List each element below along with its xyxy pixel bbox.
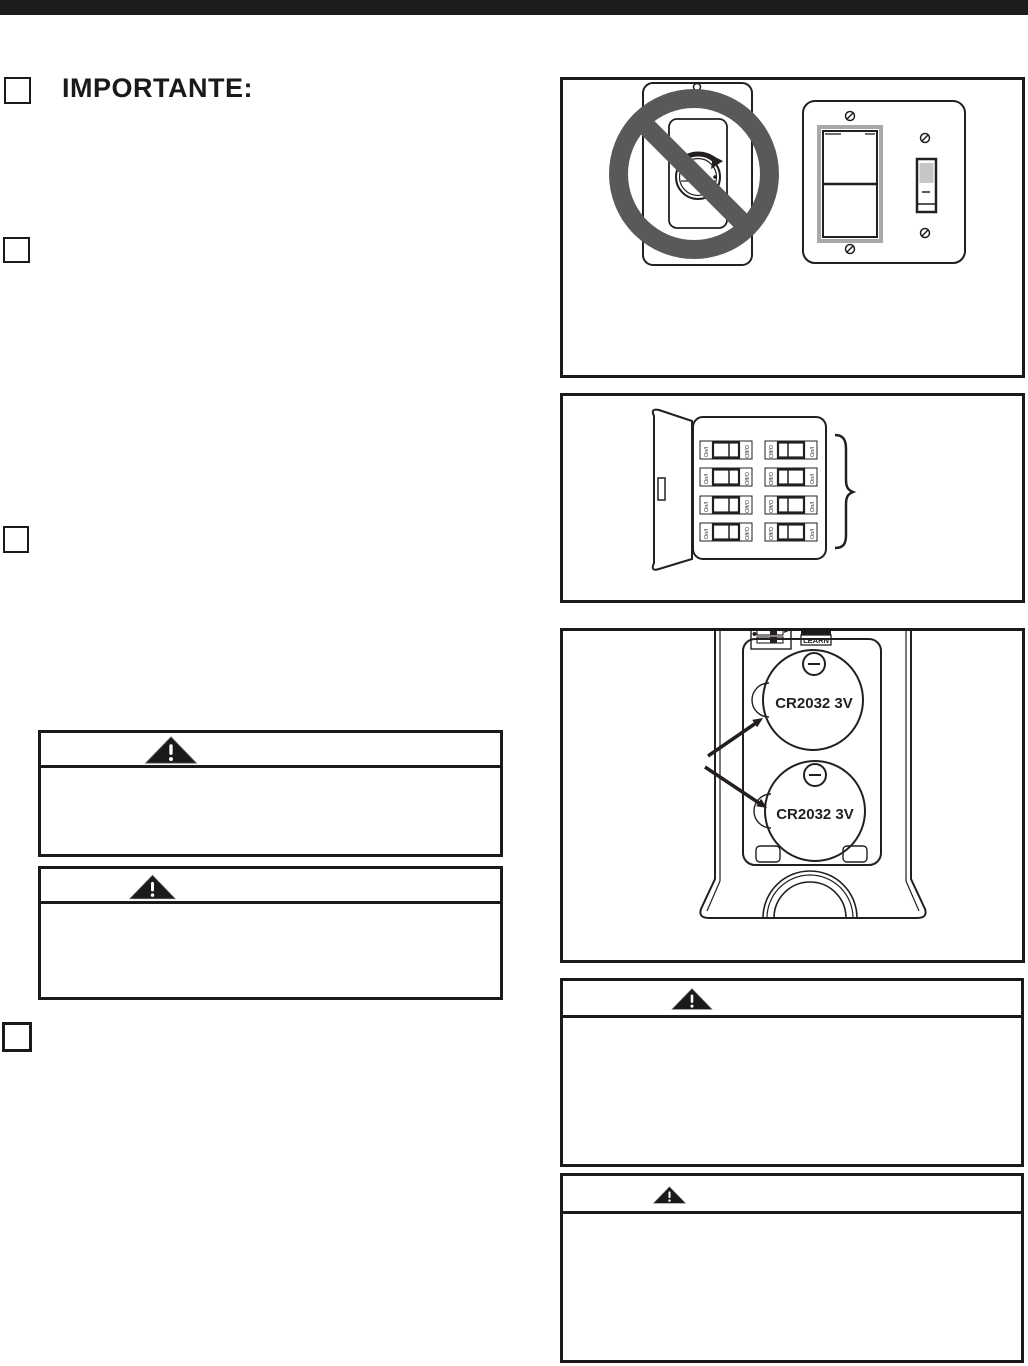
- battery-screw-1: [803, 653, 825, 675]
- svg-text:Off/O: Off/O: [769, 526, 775, 540]
- battery-label-2: CR2032 3V: [776, 806, 854, 823]
- svg-text:Off/O: Off/O: [745, 444, 751, 458]
- battery-cover-1: CR2032 3V: [763, 650, 863, 750]
- figure-breaker-panel-box: On/I Off/O On/I Off/O On/I Off/O: [560, 393, 1025, 603]
- latch-tab-right: [843, 846, 867, 862]
- svg-text:Off/O: Off/O: [745, 471, 751, 485]
- svg-text:Off/O: Off/O: [769, 471, 775, 485]
- breaker-switch: Off/O On/I: [765, 496, 817, 514]
- breaker-switch: Off/O On/I: [765, 523, 817, 541]
- svg-text:Off/O: Off/O: [769, 444, 775, 458]
- breaker-switch: On/I Off/O: [700, 468, 752, 486]
- battery-cover-2: CR2032 3V: [765, 761, 865, 861]
- breaker-panel-illustration: On/I Off/O On/I Off/O On/I Off/O: [563, 396, 1022, 600]
- warning-triangle-icon: [144, 736, 198, 764]
- step-checkbox-1: [4, 77, 31, 104]
- latch-tab-left: [756, 846, 780, 862]
- warning-header: [563, 981, 1021, 1018]
- svg-text:On/I: On/I: [704, 501, 710, 512]
- selection-brace: [835, 435, 853, 548]
- step-checkbox-2: [3, 237, 30, 263]
- breaker-switch: On/I Off/O: [700, 441, 752, 459]
- svg-text:Off/O: Off/O: [769, 499, 775, 513]
- remote-battery-illustration: CR2032 3V CR2032 3V: [563, 631, 1022, 960]
- warning-triangle-icon: [129, 874, 176, 900]
- step-checkbox-4: [2, 1022, 32, 1052]
- dimmer-plate: [619, 83, 770, 265]
- warning-box-3: [560, 978, 1024, 1167]
- breaker-switch: Off/O On/I: [765, 441, 817, 459]
- svg-text:Off/O: Off/O: [745, 526, 751, 540]
- breaker-door: [653, 410, 692, 570]
- svg-text:On/I: On/I: [704, 528, 710, 539]
- warning-header: [41, 733, 500, 768]
- breaker-switch: Off/O On/I: [765, 468, 817, 486]
- door-handle: [658, 478, 665, 500]
- breaker-switch: On/I Off/O: [700, 523, 752, 541]
- switch-plate: [803, 101, 965, 263]
- svg-text:Off/O: Off/O: [745, 499, 751, 513]
- svg-text:On/I: On/I: [810, 501, 816, 512]
- warning-header: [41, 869, 500, 904]
- warning-triangle-icon: [653, 1184, 686, 1206]
- figure-no-dimmer-box: [560, 77, 1025, 378]
- battery-label-1: CR2032 3V: [775, 695, 853, 712]
- hang-arch: [763, 871, 857, 918]
- page-title: IMPORTANTE:: [62, 73, 253, 104]
- svg-text:On/I: On/I: [810, 446, 816, 457]
- svg-text:On/I: On/I: [704, 473, 710, 484]
- prohibition-icon: [619, 99, 770, 250]
- battery-screw-2: [804, 764, 826, 786]
- svg-text:On/I: On/I: [704, 446, 710, 457]
- page-top-rule: [0, 0, 1028, 15]
- warning-header: [563, 1176, 1021, 1214]
- breaker-switch: On/I Off/O: [700, 496, 752, 514]
- learn-button: LEARN: [801, 631, 831, 645]
- warning-box-1: [38, 730, 503, 857]
- rocker-switch: [819, 127, 881, 241]
- svg-text:On/I: On/I: [810, 473, 816, 484]
- warning-box-4: [560, 1173, 1024, 1363]
- no-dimmer-illustration: [563, 80, 1022, 375]
- warning-box-2: [38, 866, 503, 1000]
- step-checkbox-3: [3, 526, 29, 553]
- learn-button-label: LEARN: [803, 636, 829, 645]
- manual-page: IMPORTANTE:: [0, 0, 1028, 1366]
- toggle-switch: [917, 159, 936, 212]
- warning-triangle-icon: [671, 988, 713, 1010]
- svg-text:On/I: On/I: [810, 528, 816, 539]
- figure-remote-battery-box: CR2032 3V CR2032 3V: [560, 628, 1025, 963]
